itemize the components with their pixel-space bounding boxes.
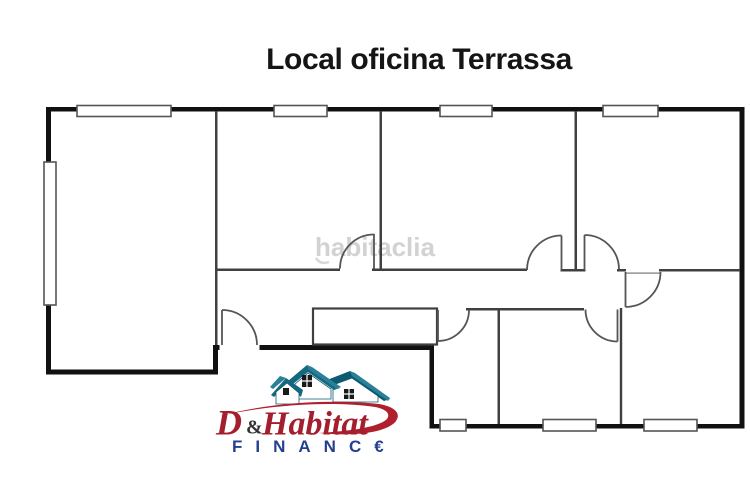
- svg-text:habitaclia: habitaclia: [315, 232, 435, 262]
- svg-text:FINANC€: FINANC€: [232, 437, 397, 456]
- svg-text:&: &: [246, 417, 263, 439]
